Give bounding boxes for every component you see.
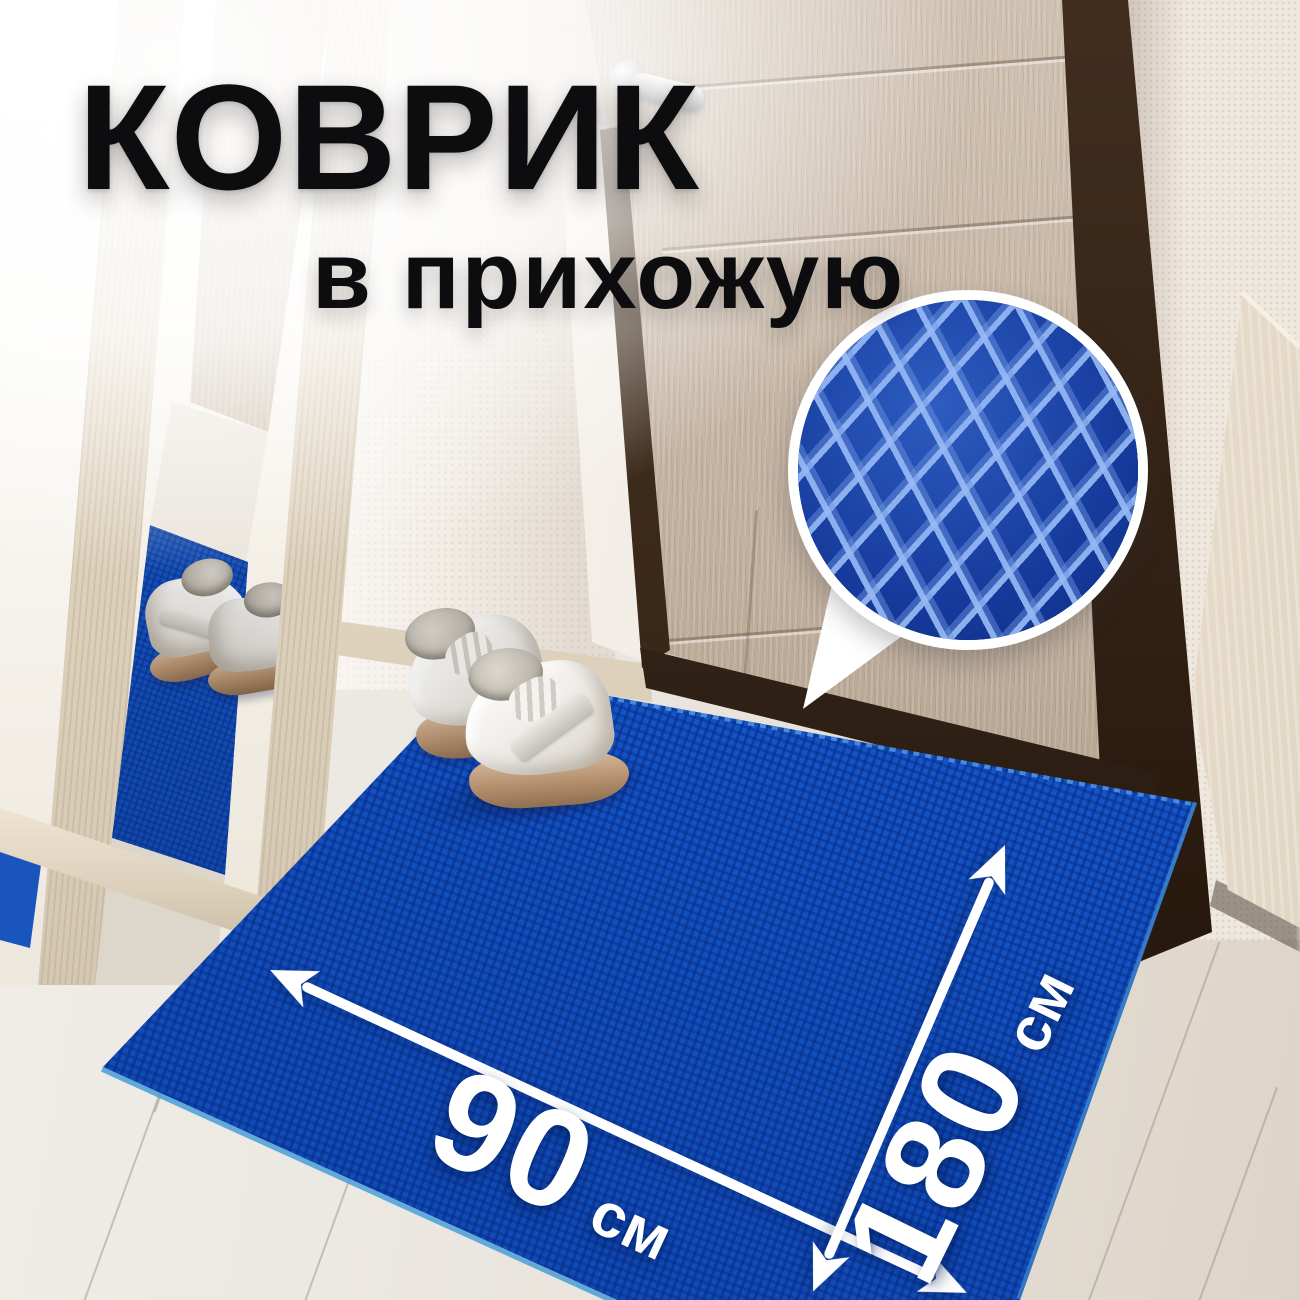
door-groove bbox=[655, 51, 1124, 91]
page-title: КОВРИК bbox=[78, 62, 700, 212]
eva-diamond-texture bbox=[788, 290, 1148, 650]
texture-magnifier-callout-icon bbox=[788, 290, 1148, 650]
page-subtitle: в прихожую bbox=[312, 228, 905, 324]
floor-plank-seam bbox=[79, 1087, 163, 1300]
product-image-canvas: 90 см 180 см КОВРИК в прихожую bbox=[0, 0, 1300, 1300]
floor-plank-seam bbox=[1194, 1087, 1278, 1300]
sneaker-right bbox=[444, 629, 639, 827]
